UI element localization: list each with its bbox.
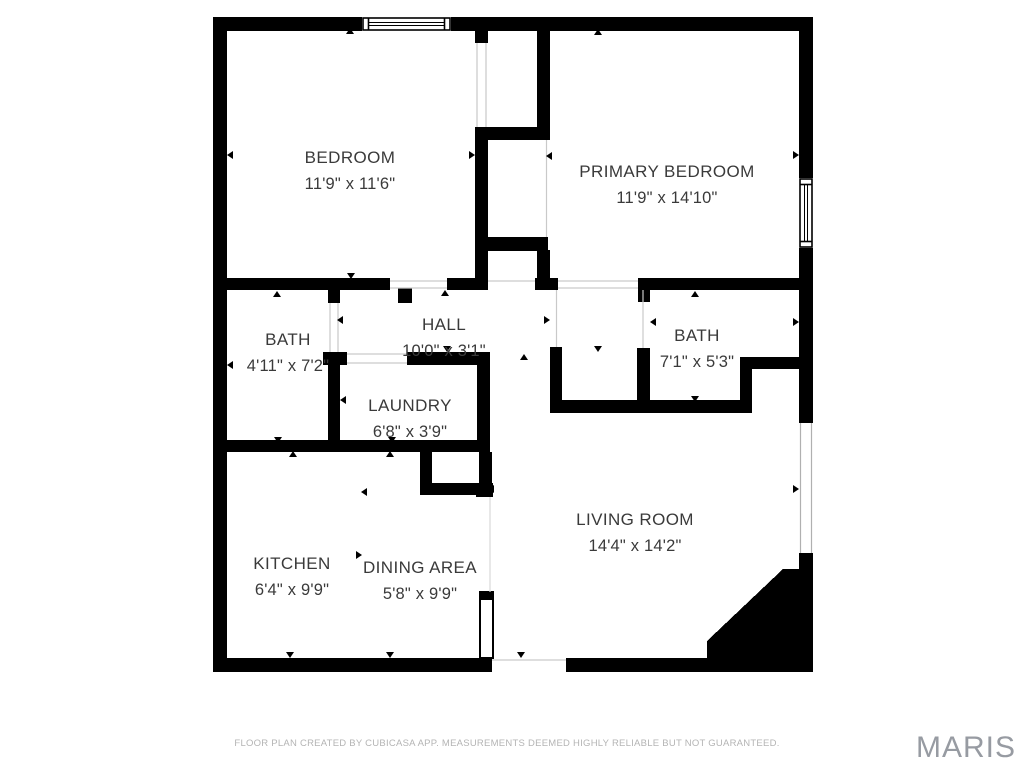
maris-watermark: MARIS	[916, 731, 1016, 765]
measure-arrow	[361, 488, 367, 496]
measure-arrow	[443, 346, 451, 352]
angled-corner-wall	[698, 553, 813, 672]
wall-openings	[362, 17, 813, 672]
measure-arrow	[793, 318, 799, 326]
measure-arrow	[793, 485, 799, 493]
measure-arrow	[691, 291, 699, 297]
measure-arrow	[650, 318, 656, 326]
measure-arrow	[517, 652, 525, 658]
window-right	[800, 179, 812, 247]
measure-arrow	[286, 652, 294, 658]
measure-arrows	[227, 28, 799, 658]
measure-arrow	[469, 151, 475, 159]
measure-arrow	[594, 346, 602, 352]
measure-arrow	[340, 396, 346, 404]
measure-arrow	[273, 291, 281, 297]
measure-arrow	[793, 151, 799, 159]
window-top	[363, 18, 450, 30]
measure-arrow	[356, 551, 362, 559]
interior-walls	[213, 31, 813, 497]
floor-plan-page: BEDROOM 11'9" x 11'6" PRIMARY BEDROOM 11…	[0, 0, 1024, 768]
measure-arrow	[386, 652, 394, 658]
walls	[213, 17, 813, 672]
measure-arrow	[227, 151, 233, 159]
disclaimer-text: FLOOR PLAN CREATED BY CUBICASA APP. MEAS…	[0, 738, 1014, 749]
measure-arrow	[544, 316, 550, 324]
measure-arrow	[520, 354, 528, 360]
outer-walls	[213, 17, 813, 672]
measure-arrow	[441, 290, 449, 296]
floor-plan-drawing	[0, 0, 1024, 768]
measure-arrow	[227, 361, 233, 369]
entry-door-leaf	[479, 592, 493, 658]
